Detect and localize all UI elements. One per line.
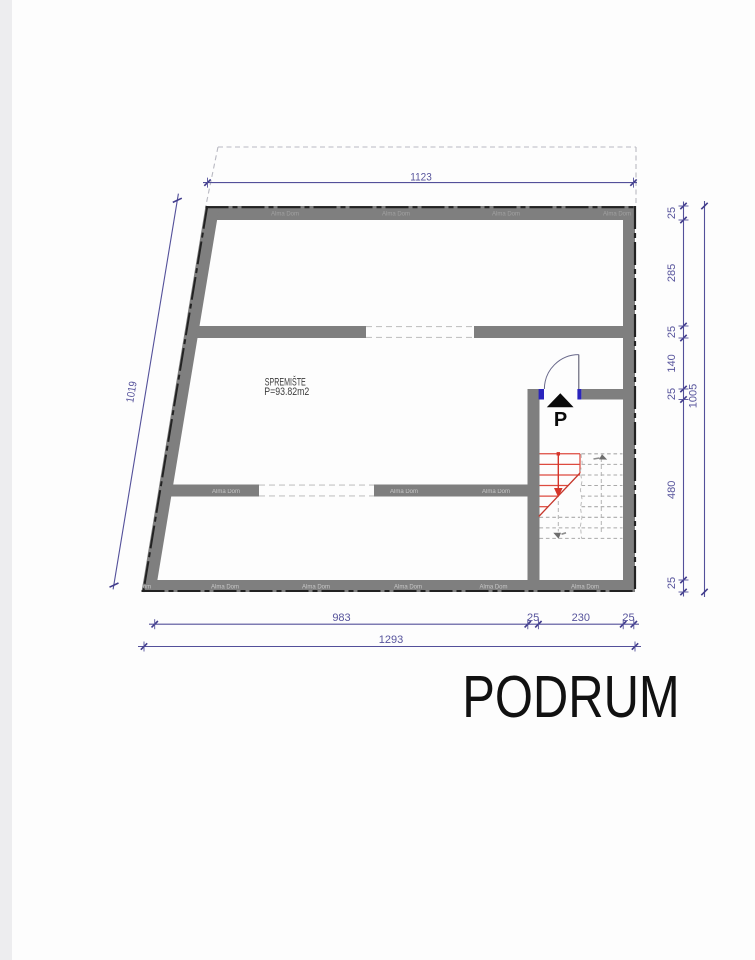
- svg-text:25: 25: [622, 612, 634, 624]
- svg-text:1005: 1005: [688, 384, 700, 408]
- svg-text:1293: 1293: [379, 634, 403, 646]
- svg-text:140: 140: [666, 354, 678, 372]
- svg-text:Alma Dom: Alma Dom: [390, 489, 418, 495]
- svg-text:Alma Dom: Alma Dom: [302, 585, 330, 591]
- svg-text:Alma Dom: Alma Dom: [479, 585, 507, 591]
- svg-text:om: om: [143, 585, 151, 591]
- svg-text:480: 480: [666, 481, 678, 499]
- svg-text:25: 25: [666, 388, 678, 400]
- svg-text:Alma Dom: Alma Dom: [482, 489, 510, 495]
- svg-text:Alma Dom: Alma Dom: [271, 212, 299, 218]
- svg-text:25: 25: [666, 577, 678, 589]
- svg-text:25: 25: [666, 207, 678, 219]
- svg-text:P=93.82m2: P=93.82m2: [264, 386, 309, 398]
- svg-text:P: P: [554, 409, 567, 431]
- svg-text:285: 285: [666, 264, 678, 282]
- svg-text:Alma Dom: Alma Dom: [394, 585, 422, 591]
- svg-text:Alma Dom: Alma Dom: [212, 489, 240, 495]
- svg-text:Alma Dom: Alma Dom: [571, 585, 599, 591]
- svg-text:230: 230: [572, 612, 590, 624]
- svg-text:Alma Dom: Alma Dom: [603, 212, 631, 218]
- svg-text:Alma Dom: Alma Dom: [211, 585, 239, 591]
- svg-text:Alma Dom: Alma Dom: [382, 212, 410, 218]
- svg-text:983: 983: [332, 612, 350, 624]
- svg-text:25: 25: [666, 326, 678, 338]
- svg-text:25: 25: [527, 612, 539, 624]
- svg-text:PODRUM: PODRUM: [462, 664, 680, 730]
- svg-text:1123: 1123: [410, 171, 432, 183]
- svg-text:Alma Dom: Alma Dom: [492, 212, 520, 218]
